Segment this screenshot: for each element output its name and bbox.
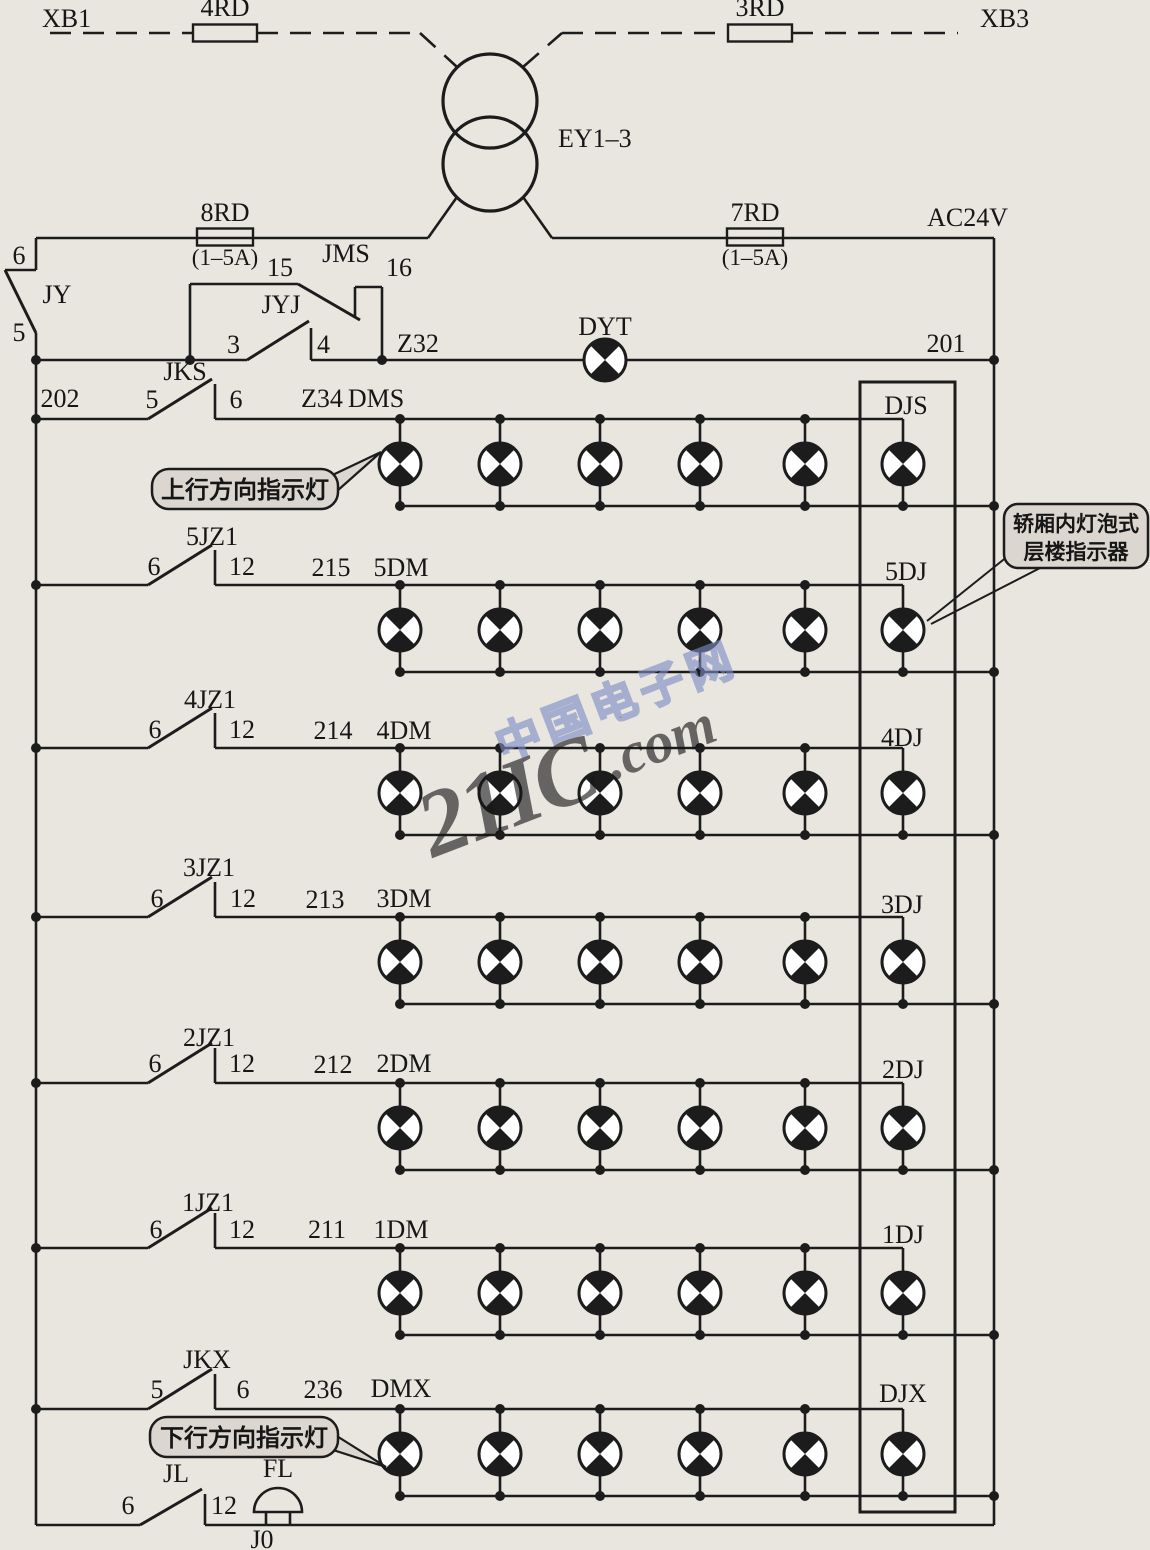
fuse-8rd-rating: (1–5A)	[192, 245, 258, 270]
junction-dot	[989, 355, 999, 365]
row-right-num: 12	[230, 884, 256, 913]
indicator-lamp-icon	[784, 1433, 826, 1475]
row-right-num: 6	[230, 385, 243, 414]
callout-down-text: 下行方向指示灯	[160, 1424, 328, 1452]
indicator-lamp-icon	[579, 1272, 621, 1314]
row-switch-label: JKX	[183, 1345, 231, 1374]
jl-right-num: 12	[211, 1491, 237, 1520]
row-wire-num: 213	[306, 885, 345, 914]
jms-left-num: 15	[267, 253, 293, 282]
watermark: 中国电子网 21IC .com	[394, 633, 772, 879]
row-line-label: 2DM	[377, 1049, 432, 1078]
callouts-group	[150, 452, 1148, 1467]
indicator-lamp-icon	[479, 609, 521, 651]
row-left-num: 6	[149, 1049, 162, 1078]
indicator-lamp-icon	[479, 1272, 521, 1314]
indicator-lamp-icon	[679, 772, 721, 814]
jy-top-num: 6	[13, 241, 26, 270]
indicator-lamp-icon	[882, 1107, 924, 1149]
row-switch-label: 3JZ1	[183, 853, 235, 882]
row-left-num: 5	[146, 385, 159, 414]
row-line-label: 5DM	[374, 553, 429, 582]
row-right-num: 12	[229, 552, 255, 581]
row-left-num: 6	[149, 715, 162, 744]
wire	[523, 33, 562, 67]
terminal-xb3-label: XB3	[980, 4, 1029, 33]
junction-dot	[31, 355, 41, 365]
row-right-num: 12	[229, 1215, 255, 1244]
callout-right-pointer-line	[931, 567, 1042, 624]
row-right-num: 12	[229, 1049, 255, 1078]
row-right-num: 12	[229, 715, 255, 744]
wire	[428, 197, 457, 238]
indicator-lamp-icon	[579, 1107, 621, 1149]
jms-label: JMS	[322, 239, 370, 268]
row-left-num: 6	[151, 884, 164, 913]
row-dj-label: DJX	[879, 1379, 927, 1408]
indicator-lamp-icon	[784, 1107, 826, 1149]
indicator-lamp-icon	[784, 941, 826, 983]
dyt-label: DYT	[578, 312, 632, 341]
junction-dot	[989, 501, 999, 511]
indicator-lamp-icon	[379, 1107, 421, 1149]
junction-dot	[989, 1330, 999, 1340]
bell-icon	[254, 1488, 302, 1512]
row-right-num: 6	[237, 1375, 250, 1404]
row-switch-label: JKS	[163, 357, 206, 386]
indicator-lamp-icon	[679, 1107, 721, 1149]
row-line-label: 1DM	[374, 1215, 429, 1244]
elevator-indicator-schematic: XB1 4RD 3RD XB3 EY1–3 8RD (1–5A) 7RD (1–…	[0, 0, 1150, 1550]
row-wire-num: 214	[314, 716, 353, 745]
indicator-lamp-icon	[379, 443, 421, 485]
row-dj-label: 4DJ	[881, 723, 923, 752]
row-line-label: DMX	[371, 1374, 432, 1403]
indicator-lamp-icon	[882, 1433, 924, 1475]
junction-dot	[989, 667, 999, 677]
jms-switch-blade	[298, 284, 360, 320]
jl-switch-blade	[140, 1489, 202, 1525]
indicator-lamp-icon	[579, 443, 621, 485]
jy-label: JY	[43, 280, 72, 309]
indicator-lamp-icon	[679, 1272, 721, 1314]
junction-dot	[989, 1491, 999, 1501]
jl-label: JL	[163, 1459, 189, 1488]
callout-right-text-line1: 轿厢内灯泡式	[1013, 512, 1139, 536]
jyj-switch-blade	[247, 321, 309, 360]
transformer-label: EY1–3	[558, 124, 632, 153]
indicator-lamp-icon	[479, 1107, 521, 1149]
indicator-lamp-icon	[784, 609, 826, 651]
fuse-3rd-label: 3RD	[735, 0, 784, 22]
jyj-label: JYJ	[261, 290, 300, 319]
row-switch-label: 5JZ1	[186, 522, 238, 551]
junction-dot	[989, 1165, 999, 1175]
row-left-num: 5	[151, 1375, 164, 1404]
indicator-lamp-icon	[479, 443, 521, 485]
indicator-lamp-icon	[379, 1272, 421, 1314]
jms-right-num: 16	[386, 253, 412, 282]
indicator-lamp-icon	[882, 1272, 924, 1314]
junction-dot	[377, 355, 387, 365]
indicator-lamp-icon	[479, 941, 521, 983]
row-dj-label: 3DJ	[881, 890, 923, 919]
jl-left-num: 6	[122, 1491, 135, 1520]
transformer-secondary-icon	[443, 117, 537, 211]
dyt-lamp-icon	[584, 339, 626, 381]
row-wire-num: 212	[314, 1050, 353, 1079]
schematic-page: XB1 4RD 3RD XB3 EY1–3 8RD (1–5A) 7RD (1–…	[0, 0, 1150, 1550]
row-dj-label: 5DJ	[885, 557, 927, 586]
indicator-lamp-icon	[679, 1433, 721, 1475]
indicator-lamp-icon	[379, 609, 421, 651]
jyj-left-num: 3	[227, 330, 240, 359]
callout-right-text-line2: 层楼指示器	[1024, 541, 1130, 564]
dashed-feeder	[50, 33, 958, 67]
terminal-xb1-label: XB1	[42, 4, 91, 33]
indicator-lamp-icon	[882, 772, 924, 814]
indicator-lamp-icon	[784, 772, 826, 814]
fuse-4rd-label: 4RD	[200, 0, 249, 22]
fuse-7rd-label: 7RD	[730, 198, 779, 227]
jy-bottom-num: 5	[13, 318, 26, 347]
row-dj-label: DJS	[884, 391, 927, 420]
indicator-lamp-icon	[379, 941, 421, 983]
indicator-lamp-icon	[579, 609, 621, 651]
indicator-lamp-icon	[679, 941, 721, 983]
wire	[420, 33, 457, 67]
row-wire-num: 211	[308, 1215, 346, 1244]
lamp-rows	[31, 379, 999, 1501]
row-wire-num: 215	[312, 553, 351, 582]
callout-right-pointer-line	[927, 556, 1008, 621]
row-line-label: 3DM	[377, 884, 432, 913]
row-switch-label: 1JZ1	[182, 1188, 234, 1217]
indicator-lamp-icon	[882, 941, 924, 983]
fuse-8rd-label: 8RD	[200, 198, 249, 227]
junction-dot	[989, 830, 999, 840]
wire-201-label: 201	[927, 329, 966, 358]
indicator-lamp-icon	[784, 1272, 826, 1314]
bell-label: FL	[263, 1454, 293, 1483]
supply-voltage-label: AC24V	[927, 203, 1008, 232]
junction-dot	[989, 999, 999, 1009]
row-wire-num: Z34	[301, 384, 343, 413]
jyj-right-num: 4	[317, 330, 330, 359]
row-dj-label: 1DJ	[882, 1220, 924, 1249]
wire-202-label: 202	[41, 384, 80, 413]
fuse-7rd-rating: (1–5A)	[722, 245, 788, 270]
indicator-lamp-icon	[579, 1433, 621, 1475]
row-left-num: 6	[148, 552, 161, 581]
indicator-lamp-icon	[579, 941, 621, 983]
bell-wire-num: J0	[250, 1525, 273, 1550]
indicator-lamp-icon	[882, 443, 924, 485]
transformer-primary-icon	[443, 54, 537, 148]
row-wire-num: 236	[304, 1375, 343, 1404]
row-dj-label: 2DJ	[882, 1055, 924, 1084]
row-switch-label: 4JZ1	[184, 685, 236, 714]
wire-z32-label: Z32	[397, 329, 439, 358]
indicator-lamp-icon	[479, 1433, 521, 1475]
row-left-num: 6	[150, 1215, 163, 1244]
fuse-4rd-icon	[193, 25, 257, 42]
fuse-3rd-icon	[728, 25, 792, 42]
row-switch-label: 2JZ1	[183, 1023, 235, 1052]
row-line-label: DMS	[348, 384, 404, 413]
indicator-lamp-icon	[379, 1433, 421, 1475]
callout-up-text: 上行方向指示灯	[161, 476, 329, 504]
indicator-lamp-icon	[679, 443, 721, 485]
indicator-lamp-icon	[882, 609, 924, 651]
wire	[523, 197, 552, 238]
row-line-label: 4DM	[377, 716, 432, 745]
indicator-lamp-icon	[784, 443, 826, 485]
